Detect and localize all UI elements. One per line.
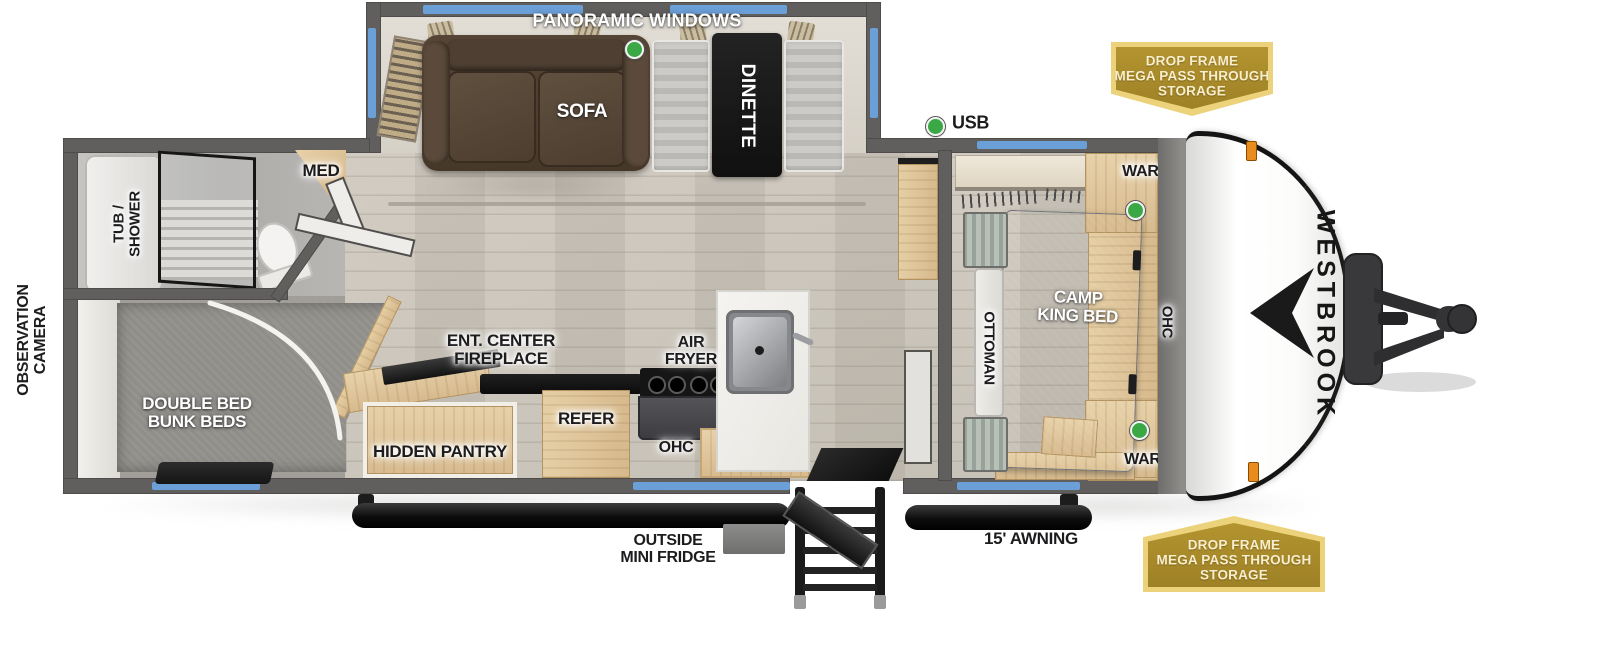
label-tub-shower: TUB / SHOWER xyxy=(111,191,143,257)
window-strip-bedroom-top xyxy=(977,141,1087,149)
steps-foot-right xyxy=(874,595,886,609)
burner-1 xyxy=(648,376,666,394)
usb-led-dot xyxy=(926,117,945,136)
sofa-arm-right xyxy=(622,43,648,167)
drop-frame-badge-top-text: DROP FRAME MEGA PASS THROUGH STORAGE xyxy=(1111,54,1273,99)
label-ohc-bedroom: OHC xyxy=(1159,306,1176,338)
sofa-cushion-left xyxy=(448,71,536,163)
label-camp-king-bed: CAMP KING BED xyxy=(1037,288,1119,326)
sofa-floor-shadow xyxy=(430,168,640,202)
steps-rung-4 xyxy=(803,567,877,574)
label-refer: REFER xyxy=(558,409,614,429)
panoramic-led-dot xyxy=(625,40,644,59)
drop-frame-badge-top: DROP FRAME MEGA PASS THROUGH STORAGE xyxy=(1111,42,1273,116)
label-sofa: SOFA xyxy=(557,101,608,123)
entry-side-cabinet xyxy=(906,352,930,462)
cap-marker-top xyxy=(1246,141,1257,161)
label-air-fryer: AIR FRYER xyxy=(665,335,717,369)
label-ottoman: OTTOMAN xyxy=(981,311,998,384)
entry-steps xyxy=(783,483,895,605)
bed-cushion-top xyxy=(963,212,1008,268)
window-strip-kitchen-bottom xyxy=(633,482,790,490)
refer-box xyxy=(542,390,630,478)
bed-handle-1 xyxy=(1133,250,1142,270)
bed-handle-2 xyxy=(1128,374,1137,394)
label-double-bed-bunk-beds: DOUBLE BED BUNK BEDS xyxy=(142,395,251,431)
window-strip-slide-right xyxy=(870,28,878,118)
burner-3 xyxy=(690,376,708,394)
bedroom-overhead-cabinet xyxy=(955,155,1088,191)
westbrook-wordmark: WESTBROOK xyxy=(1311,210,1340,420)
dinette-bench-left xyxy=(652,40,710,172)
slide-seam-line xyxy=(388,202,866,206)
label-hidden-pantry: HIDDEN PANTRY xyxy=(373,442,507,462)
bed-cushion-bottom xyxy=(963,417,1008,472)
sink-drain xyxy=(755,346,764,355)
hidden-pantry-box xyxy=(363,402,517,478)
ward-bottom-led-dot xyxy=(1130,421,1149,440)
window-strip-slide-left xyxy=(368,28,376,118)
mini-fridge-box xyxy=(723,524,785,554)
entry-mat xyxy=(807,448,904,481)
bed xyxy=(996,210,1143,473)
sofa-arm-left xyxy=(424,41,450,163)
label-awning: 15' AWNING xyxy=(984,529,1078,549)
steps-rung-5 xyxy=(803,584,877,591)
drop-frame-badge-bottom: DROP FRAME MEGA PASS THROUGH STORAGE xyxy=(1143,516,1325,592)
burner-2 xyxy=(668,376,686,394)
label-panoramic-windows: PANORAMIC WINDOWS xyxy=(532,11,741,32)
awning-tube-right xyxy=(905,505,1092,530)
label-ent-center-fireplace: ENT. CENTER FIREPLACE xyxy=(447,332,555,368)
shower-glass-door xyxy=(158,151,256,290)
dinette-bench-right xyxy=(784,40,844,172)
partition-wall xyxy=(938,150,952,481)
bunk-step xyxy=(155,462,275,484)
drop-frame-badge-bottom-text: DROP FRAME MEGA PASS THROUGH STORAGE xyxy=(1143,538,1325,583)
label-observation-camera: OBSERVATION CAMERA xyxy=(16,240,50,440)
cap-marker-bottom xyxy=(1248,462,1259,482)
window-strip-bedroom-bottom xyxy=(957,482,1080,490)
rear-wall xyxy=(63,138,78,494)
westbrook-logo-icon xyxy=(1250,268,1314,358)
hitch-icon xyxy=(1340,240,1480,400)
sofa xyxy=(422,35,650,171)
label-outside-mini-fridge: OUTSIDE MINI FRIDGE xyxy=(620,533,715,567)
label-ohc-kitchen: OHC xyxy=(659,439,694,457)
steps-foot-left xyxy=(794,595,806,609)
label-dinette: DINETTE xyxy=(736,64,758,149)
label-usb: USB xyxy=(952,113,989,134)
label-med: MED xyxy=(303,161,340,181)
kitchen-sink xyxy=(726,310,794,394)
partition-cabinet xyxy=(898,158,938,280)
bunk-bedding-strip xyxy=(78,300,120,478)
floorplan-canvas: TUB / SHOWER MED DOUBLE BED BUNK BEDS OB… xyxy=(0,0,1600,671)
ward-top-led-dot xyxy=(1126,201,1145,220)
sofa-backrest xyxy=(446,39,626,71)
